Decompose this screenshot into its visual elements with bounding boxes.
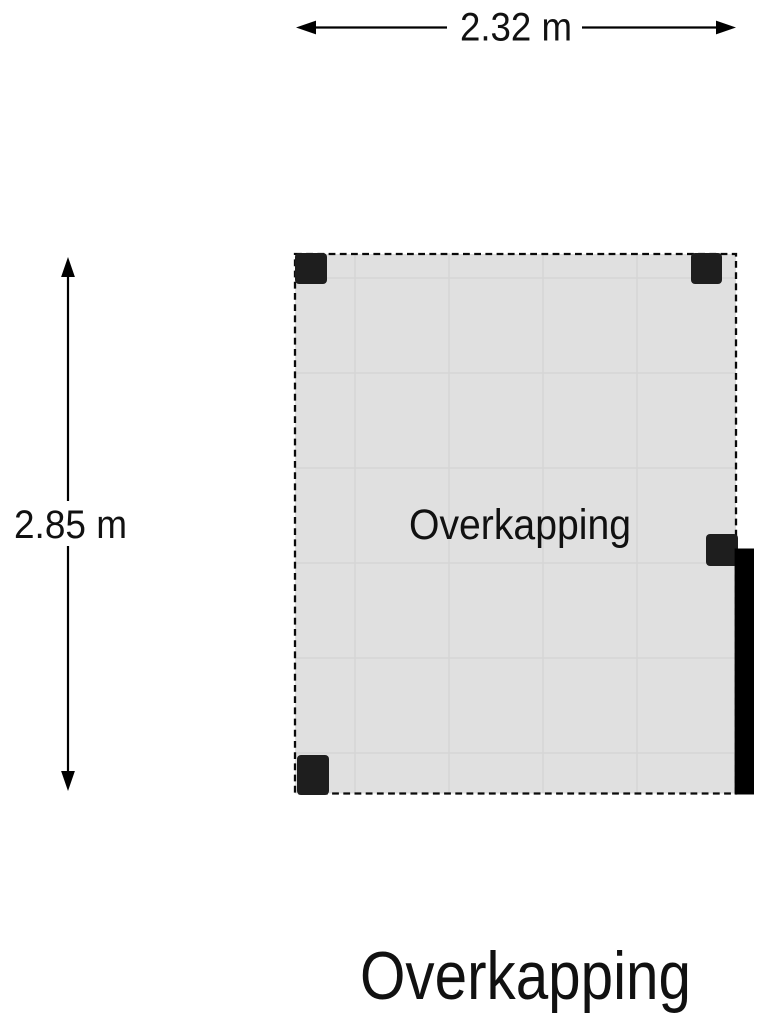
svg-text:2.85 m: 2.85 m <box>14 503 127 547</box>
svg-text:Overkapping: Overkapping <box>360 938 691 1014</box>
svg-text:2.32 m: 2.32 m <box>460 6 572 50</box>
svg-text:Overkapping: Overkapping <box>409 501 631 549</box>
